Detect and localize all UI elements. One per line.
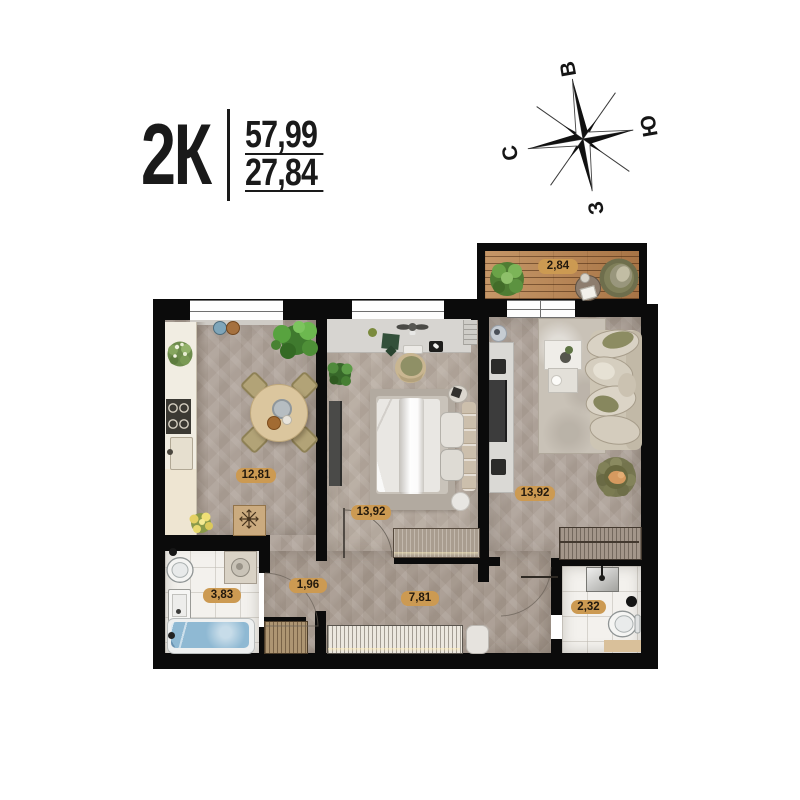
svg-text:С: С (498, 143, 523, 162)
svg-text:Ю: Ю (636, 113, 662, 138)
svg-text:В: В (556, 59, 581, 78)
svg-text:З: З (584, 199, 609, 216)
